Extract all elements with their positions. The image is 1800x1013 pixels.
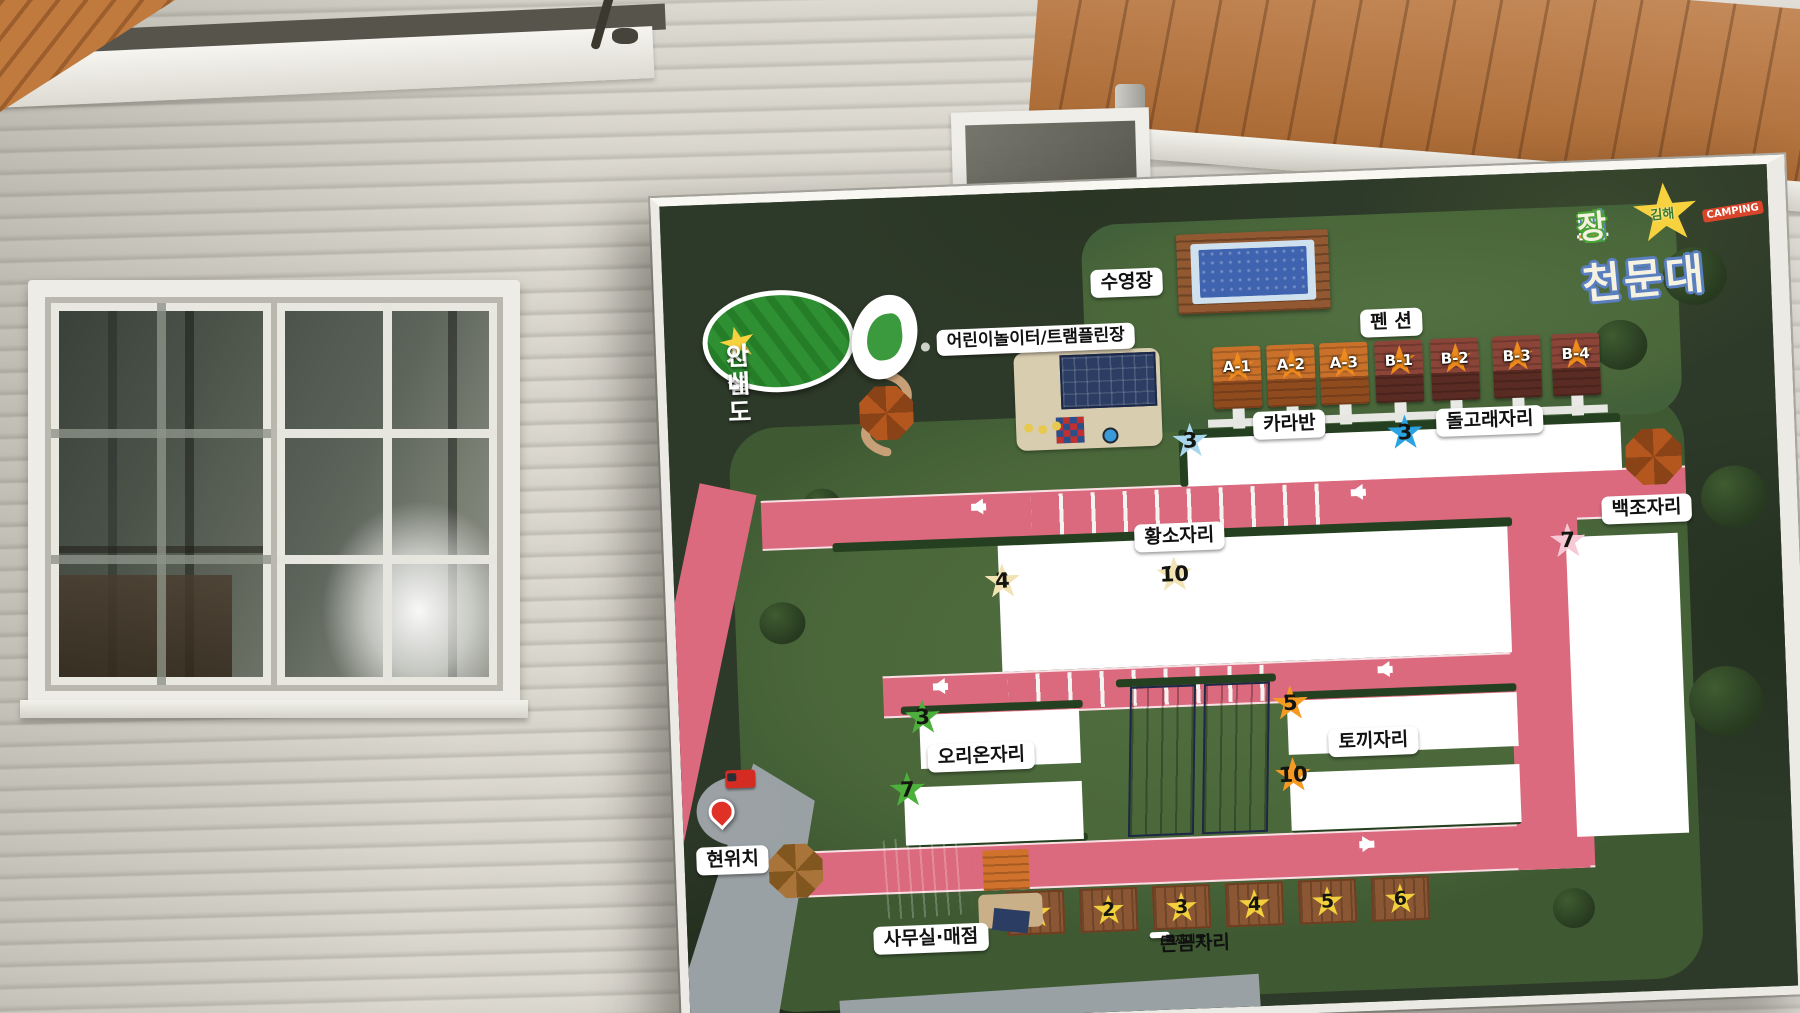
office-building xyxy=(882,834,972,920)
wood-deck-site: 2 xyxy=(1079,887,1139,933)
play-mat xyxy=(1056,417,1085,444)
trampoline xyxy=(1059,352,1157,410)
site-marker: 3 xyxy=(1385,412,1424,451)
rabbit-site-label: 토끼자리 xyxy=(1328,726,1419,757)
campsite-cell: 3 xyxy=(1001,548,1002,562)
dolphin-site-label: 돌고래자리 xyxy=(1436,405,1544,437)
site-number: 10 xyxy=(1159,563,1189,585)
campground-logo: 김해 CAMPING 천문대 오토캠핑장 xyxy=(1575,183,1798,203)
site-number: 3 xyxy=(1397,421,1412,443)
site-marker: 2 xyxy=(1091,892,1126,927)
shed xyxy=(982,849,1030,891)
campsite-cell: 2 xyxy=(1001,548,1002,562)
site-marker: 3 xyxy=(1164,889,1199,924)
small-building xyxy=(992,908,1030,934)
map-title-line2: 안내도 xyxy=(726,342,753,427)
orion-site-label: 오리온자리 xyxy=(927,741,1035,773)
site-number: 5 xyxy=(1321,892,1335,911)
rabbit-sites-row2: 678910 xyxy=(1290,764,1522,831)
logo-star-text: 김해 xyxy=(1649,202,1675,223)
window-muntin xyxy=(383,303,392,685)
pension-unit-label: A-3 xyxy=(1329,353,1358,372)
pension-unit-label: B-3 xyxy=(1502,346,1531,365)
window-muntin xyxy=(157,303,166,685)
window-sill xyxy=(20,700,528,718)
pool-deck xyxy=(1176,229,1331,315)
tree xyxy=(1700,464,1768,528)
pension-unit-label: B-2 xyxy=(1440,349,1469,368)
glass-reflection-highlight xyxy=(322,501,489,677)
campsite-cell: 4 xyxy=(1001,548,1002,562)
glass-reflection-deck xyxy=(59,575,232,677)
pension-unit-label: A-1 xyxy=(1222,357,1251,376)
photo-of-campground-map-sign: 현위치 수영장 어린이놀이터/트램플린장 xyxy=(0,0,1800,1013)
site-marker: 5 xyxy=(1271,683,1310,722)
pool-rim xyxy=(1190,240,1316,305)
pension-cabin: A-1 xyxy=(1212,346,1262,410)
site-number: 4 xyxy=(995,570,1010,592)
site-number: 5 xyxy=(1283,692,1298,714)
office-label: 사무실·매점 xyxy=(873,923,989,955)
site-marker: 4 xyxy=(983,561,1022,600)
site-number: 3 xyxy=(1175,897,1189,916)
leaf-icon xyxy=(864,312,905,362)
window-sash-right xyxy=(277,303,497,685)
site-marker: 5 xyxy=(1310,884,1345,919)
children-icons xyxy=(1024,423,1033,432)
play-equipment xyxy=(1102,427,1119,444)
bigbear-site-label: 큰곰자리 (목재데크) xyxy=(1150,932,1170,939)
tree xyxy=(1688,665,1765,738)
bull-sites-right: 5678910 xyxy=(1172,528,1510,663)
bigbear-site-sublabel: (목재데크) xyxy=(1160,933,1211,948)
pool-label: 수영장 xyxy=(1090,267,1163,298)
pension-cabin: A-3 xyxy=(1319,342,1369,406)
wood-deck-site: 4 xyxy=(1225,881,1285,927)
service-building xyxy=(1202,682,1270,835)
pension-unit-label: B-1 xyxy=(1384,351,1413,370)
window-sash-left xyxy=(51,303,271,685)
service-building xyxy=(1128,684,1196,837)
site-marker: 10 xyxy=(1273,755,1312,794)
swan-sites: 1234567 xyxy=(1566,533,1689,837)
attic-window-glass xyxy=(965,121,1137,190)
site-number: 10 xyxy=(1278,764,1308,786)
current-location-label: 현위치 xyxy=(696,845,769,876)
caravan-sites: 123 xyxy=(1189,432,1406,484)
bull-sites-left: 1234 xyxy=(1000,541,1177,670)
logo-char: 장 xyxy=(1575,201,1609,250)
site-marker: 7 xyxy=(1548,521,1587,560)
pension-cabin: B-1 xyxy=(1374,339,1424,403)
truck-icon xyxy=(725,769,756,788)
site-marker: 3 xyxy=(903,697,942,736)
pension-unit-label: B-4 xyxy=(1561,344,1590,363)
map-title-badge: 시설 안내도 xyxy=(701,287,857,395)
site-number: 2 xyxy=(1102,900,1116,919)
site-marker: 10 xyxy=(1155,554,1194,593)
pension-cabin: B-4 xyxy=(1551,333,1601,397)
site-marker: 3 xyxy=(1170,421,1209,460)
pension-cabin: B-2 xyxy=(1430,337,1480,401)
site-number: 6 xyxy=(1393,889,1407,908)
logo-title-line1: 천문대 xyxy=(1579,240,1709,312)
logo-camping-text: CAMPING xyxy=(1702,200,1764,223)
pension-unit-label: A-2 xyxy=(1276,355,1305,374)
playground-area xyxy=(1013,348,1163,452)
swimming-pool xyxy=(1198,246,1308,298)
bull-site-strip: 1234 5678910 xyxy=(998,526,1512,671)
pension-cabin: A-2 xyxy=(1266,344,1316,408)
site-marker: 6 xyxy=(1383,881,1418,916)
sliding-window xyxy=(28,280,520,708)
site-number: 3 xyxy=(915,706,930,728)
wood-deck-site: 3 xyxy=(1152,884,1212,930)
campsite-cell: 1 xyxy=(1001,548,1002,562)
site-marker: 7 xyxy=(888,770,927,809)
window-inner-frame xyxy=(45,297,503,691)
bull-site-label: 황소자리 xyxy=(1134,521,1225,552)
map-canvas: 현위치 수영장 어린이놀이터/트램플린장 xyxy=(659,164,1798,1013)
wood-deck-site: 5 xyxy=(1298,878,1358,924)
site-marker: 4 xyxy=(1237,887,1272,922)
pension-label: 펜 션 xyxy=(1360,307,1423,337)
caravan-label: 카라반 xyxy=(1253,409,1326,440)
site-number: 3 xyxy=(1182,430,1197,452)
pension-cabin: B-3 xyxy=(1492,335,1542,399)
wood-deck-site: 6 xyxy=(1371,876,1431,922)
site-number: 4 xyxy=(1248,895,1262,914)
campground-map-sign: 현위치 수영장 어린이놀이터/트램플린장 xyxy=(650,154,1800,1013)
cable-fixture xyxy=(612,28,638,44)
swan-site-label: 백조자리 xyxy=(1601,493,1692,524)
site-number: 7 xyxy=(900,779,915,801)
site-number: 7 xyxy=(1560,530,1575,552)
